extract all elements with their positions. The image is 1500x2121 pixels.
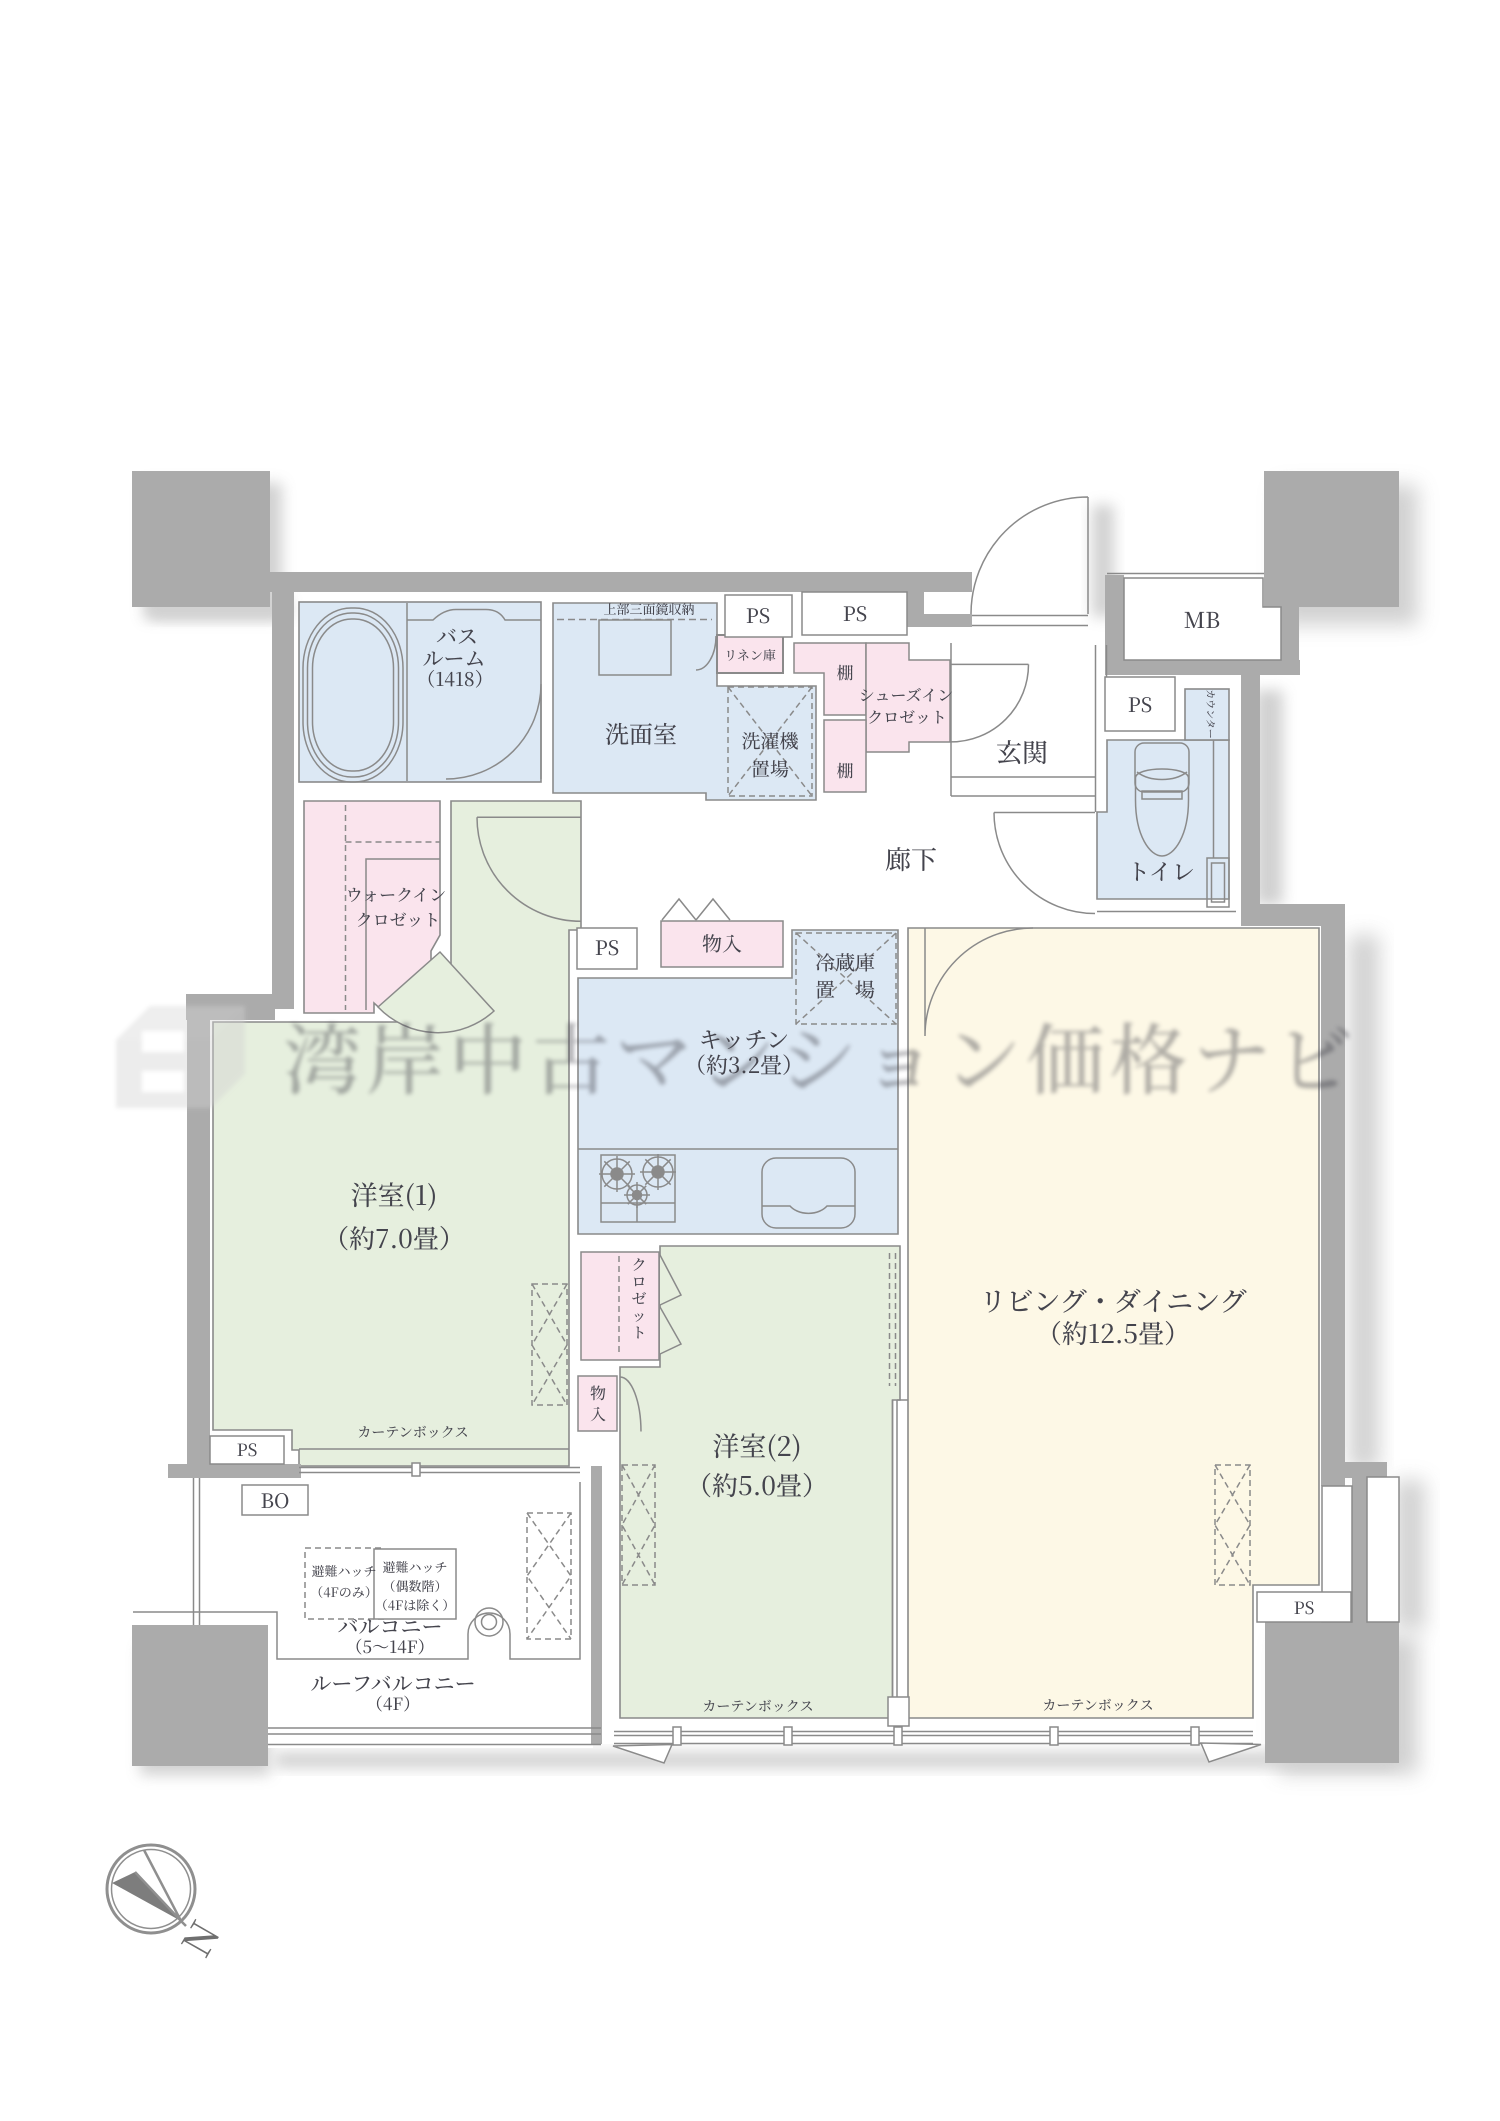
svg-text:クロゼット: クロゼット xyxy=(356,906,441,931)
svg-text:洋室(1): 洋室(1) xyxy=(351,1174,438,1213)
svg-text:（5～14F）: （5～14F） xyxy=(346,1633,435,1658)
svg-text:入: 入 xyxy=(590,1402,606,1425)
svg-text:クロゼット: クロゼット xyxy=(867,705,947,728)
svg-text:トイレ: トイレ xyxy=(1127,854,1195,887)
svg-text:棚: 棚 xyxy=(837,757,854,782)
svg-text:冷蔵庫: 冷蔵庫 xyxy=(815,947,875,976)
svg-text:ト: ト xyxy=(631,1322,646,1343)
svg-text:PS: PS xyxy=(1294,1594,1315,1619)
svg-text:（約5.0畳）: （約5.0畳） xyxy=(686,1466,828,1503)
svg-text:廊下: 廊下 xyxy=(885,840,937,877)
svg-text:避難ハッチ: 避難ハッチ xyxy=(382,1557,447,1576)
svg-text:シューズイン: シューズイン xyxy=(859,683,954,706)
svg-text:MB: MB xyxy=(1184,604,1220,635)
svg-text:（1418）: （1418） xyxy=(416,665,493,692)
svg-text:PS: PS xyxy=(746,600,770,629)
svg-text:（偶数階）: （偶数階） xyxy=(382,1576,447,1595)
svg-text:玄関: 玄関 xyxy=(996,733,1048,770)
svg-text:カウンター: カウンター xyxy=(1204,689,1219,739)
svg-text:PS: PS xyxy=(843,598,867,627)
svg-text:カーテンボックス: カーテンボックス xyxy=(357,1422,468,1442)
svg-text:BO: BO xyxy=(261,1485,290,1514)
svg-text:湾岸中古マンション価格ナビ: 湾岸中古マンション価格ナビ xyxy=(283,999,1359,1111)
svg-text:物入: 物入 xyxy=(702,928,742,957)
svg-text:リネン庫: リネン庫 xyxy=(724,645,776,664)
svg-text:カーテンボックス: カーテンボックス xyxy=(702,1696,813,1716)
svg-text:（4F）: （4F） xyxy=(366,1690,420,1715)
svg-text:（約12.5畳）: （約12.5畳） xyxy=(1036,1314,1190,1351)
svg-text:洗面室: 洗面室 xyxy=(605,715,677,750)
svg-text:PS: PS xyxy=(237,1436,258,1461)
svg-text:棚: 棚 xyxy=(837,659,854,684)
svg-text:（約7.0畳）: （約7.0畳） xyxy=(323,1219,465,1256)
svg-text:洋室(2): 洋室(2) xyxy=(712,1425,801,1464)
svg-text:ウォークイン: ウォークイン xyxy=(346,881,446,906)
svg-text:上部三面鏡収納: 上部三面鏡収納 xyxy=(603,599,694,618)
svg-text:避難ハッチ: 避難ハッチ xyxy=(311,1561,376,1580)
svg-text:洗濯機: 洗濯機 xyxy=(741,727,798,754)
svg-text:PS: PS xyxy=(1128,689,1152,718)
svg-text:カーテンボックス: カーテンボックス xyxy=(1042,1695,1153,1715)
svg-text:PS: PS xyxy=(595,932,619,961)
svg-text:置場: 置場 xyxy=(751,755,789,782)
svg-text:物: 物 xyxy=(590,1381,606,1404)
svg-text:（4Fのみ）: （4Fのみ） xyxy=(310,1582,378,1601)
